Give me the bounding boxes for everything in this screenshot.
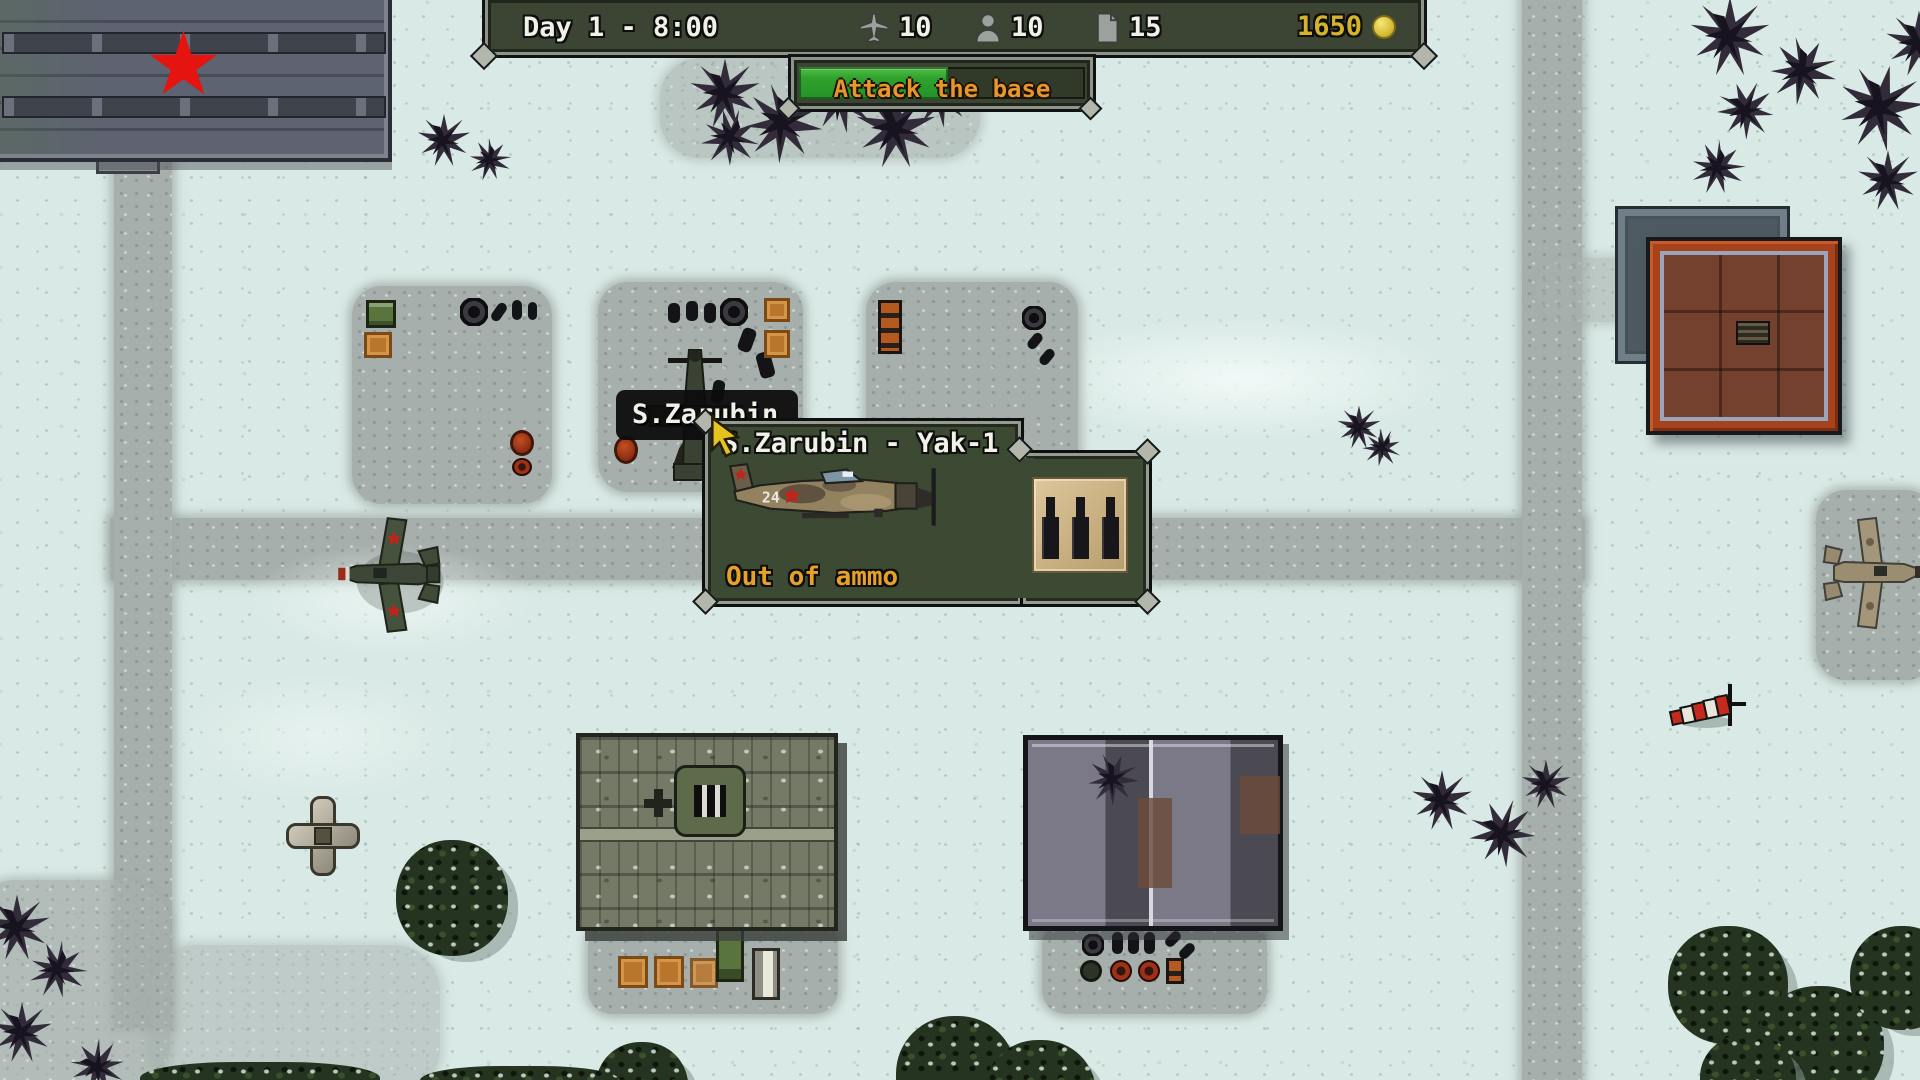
shell: [1144, 932, 1155, 954]
game-map: Day 1 - 8:00 10 10 15 1650 Attack the ba…: [0, 0, 1920, 1080]
bare-tree: [0, 1000, 54, 1064]
attack-button-track: Attack the base: [799, 67, 1085, 99]
red-barrel: [614, 436, 638, 464]
orange-crate: [618, 956, 648, 988]
spare-wheel: [460, 298, 488, 326]
planes-count: 10: [899, 0, 932, 60]
bullet-icon: [1102, 517, 1119, 559]
depot-building-gray[interactable]: [1023, 735, 1283, 931]
red-wheel: [1138, 960, 1160, 982]
green-crate: [366, 300, 396, 328]
attack-button-label: Attack the base: [799, 67, 1085, 99]
gravel-patch: [150, 945, 440, 1080]
tow-ring: [1082, 934, 1104, 956]
bare-tree: [1688, 0, 1772, 78]
bullet-icon: [1042, 517, 1059, 559]
svg-text:24: 24: [762, 489, 780, 506]
pilot-icon: [971, 11, 1005, 45]
shell: [1112, 932, 1123, 954]
depot-roof-brown[interactable]: [1646, 237, 1842, 435]
orange-crate: [690, 958, 718, 988]
pilots-count: 10: [1011, 0, 1044, 60]
dark-barrel: [1080, 960, 1102, 982]
shell: [1128, 932, 1139, 954]
roof-vent: [674, 765, 746, 837]
aa-emplacement: [286, 796, 360, 876]
orange-crate: [654, 956, 684, 988]
bullet-icon: [1072, 517, 1089, 559]
parked-plane-east[interactable]: [1812, 512, 1920, 636]
supplies-count: 15: [1129, 0, 1162, 60]
shell: [668, 303, 680, 323]
orange-crate: [764, 298, 790, 322]
yak1-side-profile-sprite: 24: [728, 460, 940, 534]
green-barrel-stack: [716, 928, 744, 982]
red-barrel: [510, 430, 534, 456]
orange-crate: [764, 330, 790, 358]
plane-icon: [857, 11, 891, 45]
shell: [528, 302, 537, 320]
ammo-crate-icon: [1032, 477, 1128, 573]
supply-icon: [1091, 11, 1123, 45]
hq-building-red-star[interactable]: [0, 0, 392, 162]
ammo-belt-crate: [1166, 958, 1184, 984]
popup-title: S.Zarubin - Yak-1: [722, 428, 998, 459]
plus-marking: [644, 789, 672, 817]
hand-cart: [752, 948, 780, 1000]
shell: [704, 303, 716, 323]
pine-tree: [140, 1062, 380, 1080]
popup-seam-patch: [1006, 458, 1034, 598]
snow-drift: [1030, 318, 1450, 440]
road-vertical-right: [1522, 0, 1582, 1080]
rust-patch: [1240, 776, 1280, 834]
roof-hatch: [1736, 321, 1770, 345]
attack-base-button[interactable]: Attack the base: [788, 54, 1096, 112]
windsock: [1666, 680, 1752, 730]
spare-wheel: [1022, 306, 1046, 330]
popup-status-text: Out of ammo: [726, 562, 898, 592]
red-wheel: [1110, 960, 1132, 982]
bare-tree: [1884, 8, 1920, 78]
parked-plane-west[interactable]: [338, 510, 454, 640]
hangar-building[interactable]: [576, 733, 838, 931]
pine-tree: [420, 1066, 620, 1080]
day-time-label: Day 1 - 8:00: [523, 0, 718, 59]
snow-drift: [180, 672, 460, 802]
shell: [686, 301, 698, 321]
coin-icon: [1372, 15, 1396, 39]
bare-tree: [1856, 148, 1920, 212]
yellow-pointer-cursor: [706, 414, 744, 460]
shell: [512, 300, 522, 320]
rust-patch: [1138, 798, 1172, 888]
red-wheel: [512, 458, 532, 476]
bare-tree: [1520, 758, 1572, 810]
spare-wheel: [720, 298, 748, 326]
red-star-icon: [144, 14, 223, 114]
top-status-bar: Day 1 - 8:00 10 10 15 1650: [482, 0, 1427, 58]
money-amount: 1650: [1297, 0, 1362, 58]
ammo-belt-crate: [878, 300, 902, 354]
pine-tree: [396, 840, 508, 956]
orange-crate: [364, 332, 392, 358]
